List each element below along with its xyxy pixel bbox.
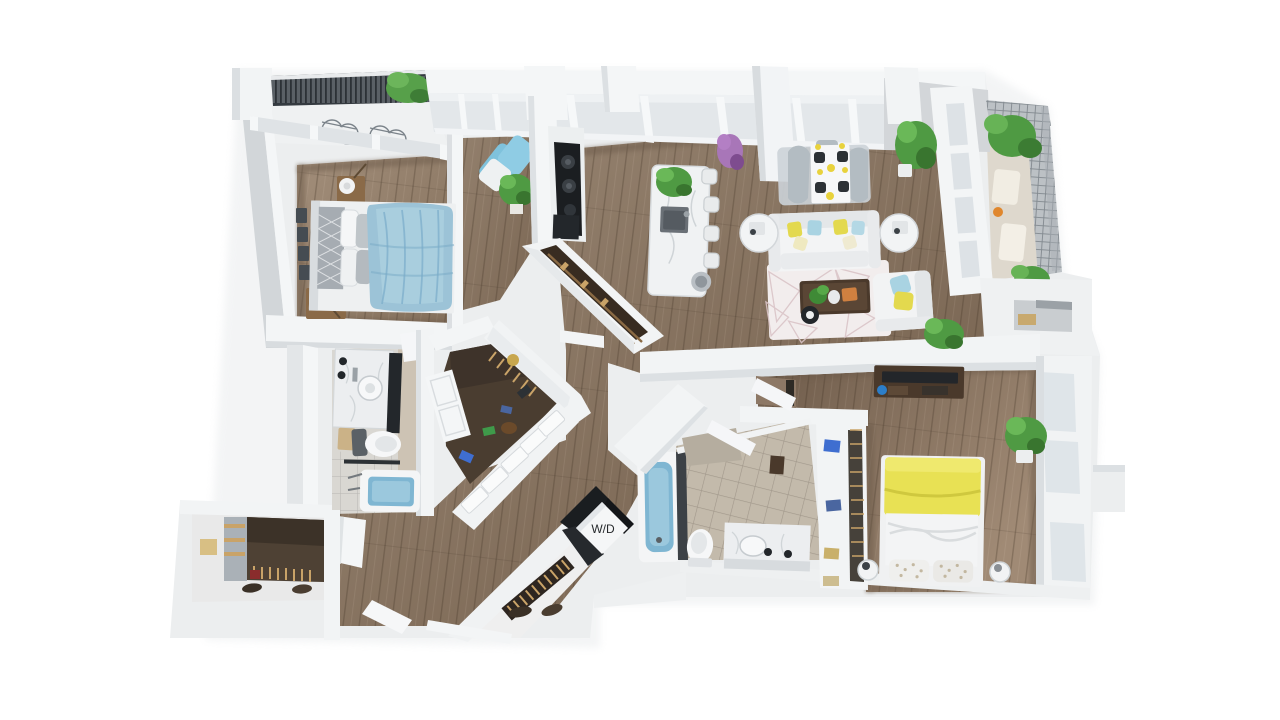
- svg-text:W/D: W/D: [591, 522, 615, 536]
